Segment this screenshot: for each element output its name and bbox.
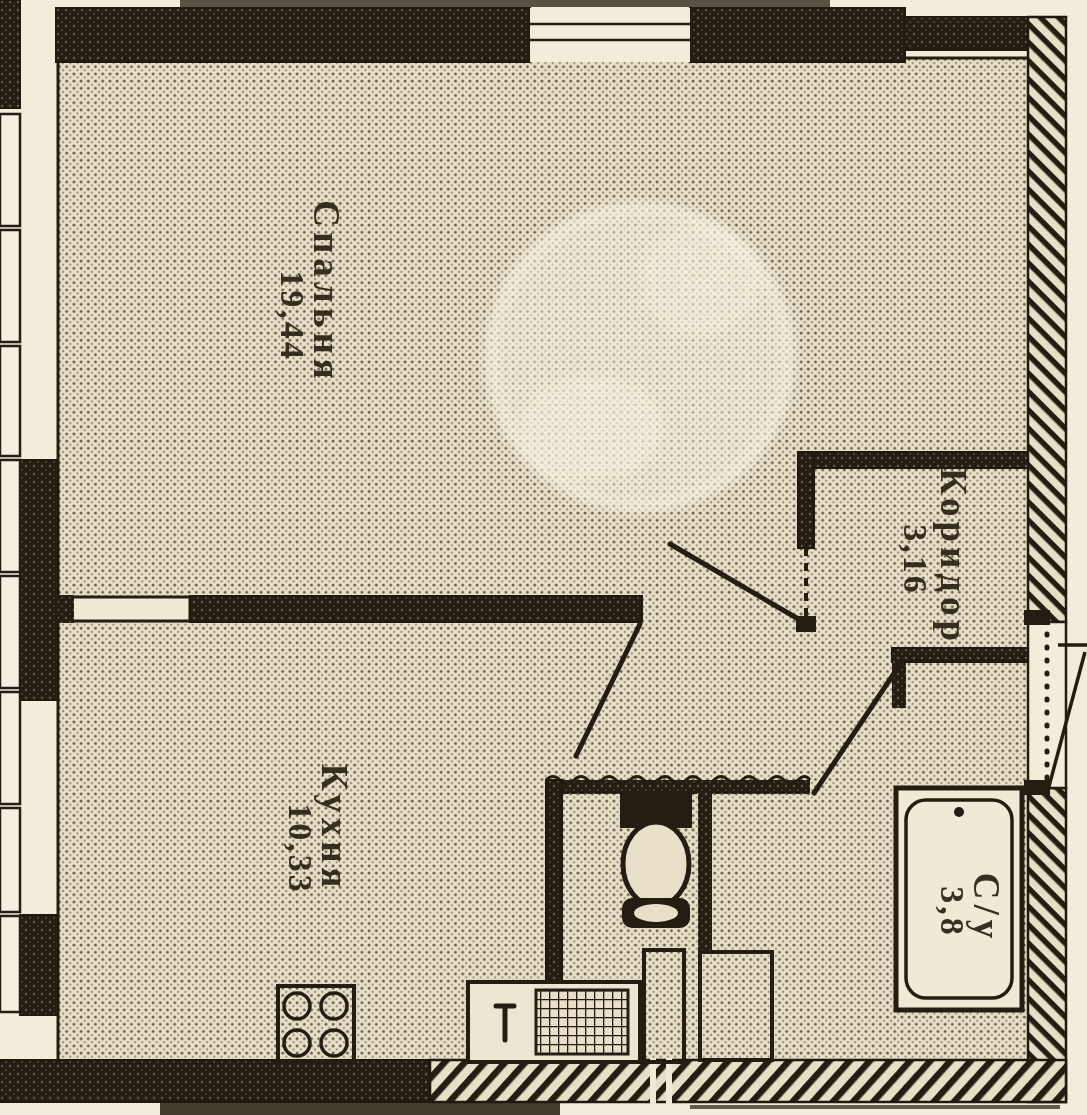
left-wall-low-pier <box>20 915 58 1015</box>
landing-edge <box>160 1103 560 1115</box>
corridor-label: Коридор <box>933 468 974 646</box>
window-opening <box>530 8 690 62</box>
top-wall-left <box>56 8 530 62</box>
bottom-wall-left <box>0 1060 430 1102</box>
drain-icon <box>954 807 964 817</box>
left-glazing-strip <box>0 114 20 1012</box>
window-symbol <box>0 576 20 688</box>
right-wall-upper <box>1028 17 1066 622</box>
toilet <box>620 792 692 928</box>
toilet-base-inner <box>634 904 678 922</box>
window-jamb <box>1024 610 1050 625</box>
top-edge-line <box>180 0 830 7</box>
corridor-top-wall <box>798 452 1028 468</box>
window-symbol <box>0 114 20 226</box>
kitchen-sink <box>468 982 640 1062</box>
kitchen-area: 10,33 <box>282 803 319 895</box>
divider-wall-light <box>58 597 190 621</box>
toilet-room-right-wall <box>698 780 712 950</box>
corridor-area: 3,16 <box>897 524 934 596</box>
window-symbol <box>0 692 20 804</box>
door-jamb <box>650 1058 656 1104</box>
window-symbol <box>0 346 20 456</box>
bathroom-label: С/у <box>966 873 1007 944</box>
window-jamb <box>1024 780 1050 795</box>
top-window <box>530 8 690 62</box>
bedroom-label: Спальня <box>306 200 347 384</box>
landing-edge <box>690 1105 1060 1109</box>
bathroom-area: 3,8 <box>934 886 971 938</box>
door-jamb <box>666 1058 672 1104</box>
window-symbol <box>0 460 20 572</box>
floor-plan-scan: Спальня 19,44 Кухня 10,33 Коридор 3,16 С… <box>0 0 1087 1115</box>
toilet-symbol <box>623 822 689 906</box>
window-symbol <box>0 230 20 342</box>
top-wall-right <box>690 8 905 62</box>
left-wall-mid-pier <box>20 460 58 700</box>
divider-wall-dark <box>190 596 642 622</box>
divider-wall-cap <box>58 595 74 623</box>
bedroom-area: 19,44 <box>274 270 311 362</box>
apartment-floor <box>58 58 1030 1062</box>
window-symbol <box>0 916 20 1012</box>
corridor-left-wall <box>798 452 814 548</box>
floor-plan-drawing: Спальня 19,44 Кухня 10,33 Коридор 3,16 С… <box>0 0 1087 1115</box>
kitchen-sink-symbol <box>536 990 628 1054</box>
kitchen-label: Кухня <box>314 763 355 892</box>
bathroom-top-wall <box>892 648 1028 662</box>
right-wall-lower <box>1028 788 1066 1102</box>
circular-watermark <box>488 205 792 509</box>
bottom-wall-right <box>430 1060 1066 1102</box>
window-symbol <box>0 808 20 912</box>
left-wall-top-pier <box>0 0 20 108</box>
